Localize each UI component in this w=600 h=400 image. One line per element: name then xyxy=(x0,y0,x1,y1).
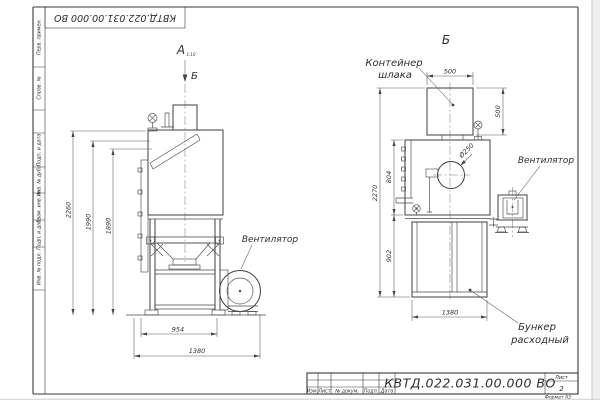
front-door-strip xyxy=(138,160,148,272)
view-front-scale-note: 1:10 xyxy=(187,52,196,57)
side-valve-top-icon xyxy=(474,121,482,140)
front-valve-icon xyxy=(148,114,157,132)
drawing-sheet: Перв. примен. Справ. № Подп. и дата Инв.… xyxy=(0,0,600,400)
front-dim-2260-text: 2260 xyxy=(65,202,73,219)
frame-cell-podp-data-1: Подп. и дата xyxy=(37,134,43,167)
front-dim-954: 954 xyxy=(141,318,217,337)
front-sloped-panel xyxy=(150,134,200,169)
stamp-designation-rotated: КВТД.022.031.00.000 ВО xyxy=(53,12,176,23)
side-dim-500w-text: 500 xyxy=(444,68,456,76)
side-dim-804: 804 xyxy=(385,140,403,215)
front-body xyxy=(148,130,223,215)
side-dim-902: 902 xyxy=(385,215,396,297)
front-dim-1380: 1380 xyxy=(134,314,260,359)
front-dim-1990: 1990 xyxy=(85,141,151,315)
side-fan xyxy=(489,187,529,237)
format-note: Формат А3 xyxy=(545,395,571,400)
side-dim-500h-text: 500 xyxy=(494,105,502,117)
section-arrowhead-icon xyxy=(183,75,188,83)
view-front: А 1:10 Б xyxy=(65,43,299,359)
side-valve-lower-icon xyxy=(413,205,421,215)
front-fan xyxy=(220,270,261,315)
front-outlet-pipe xyxy=(161,113,174,130)
front-dim-1890: 1890 xyxy=(105,149,153,315)
frame-cell-sprav-n: Справ. № xyxy=(37,76,43,99)
view-side-title: Б xyxy=(442,33,450,47)
front-fan-label: Вентилятор xyxy=(242,235,299,245)
side-dim-804-text: 804 xyxy=(385,171,393,183)
front-dim-954-text: 954 xyxy=(172,326,184,334)
title-block-col-podp: Подп. xyxy=(364,388,379,394)
drawing-canvas: Перв. примен. Справ. № Подп. и дата Инв.… xyxy=(0,0,600,400)
front-fan-callout: Вентилятор xyxy=(241,235,298,269)
section-arrow: Б xyxy=(183,60,198,82)
side-body xyxy=(405,140,490,215)
side-fan-label: Вентилятор xyxy=(518,156,575,166)
view-side: Б Контейнер шлака 500 500 xyxy=(365,33,574,346)
side-dim-d250-text: Ø250 xyxy=(457,142,476,161)
side-dim-902-text: 902 xyxy=(385,250,393,262)
paper-edges xyxy=(0,0,600,400)
paper-shadow-right xyxy=(592,0,600,400)
side-container-label-2: шлака xyxy=(378,70,412,81)
title-block-col-doc: № докум. xyxy=(334,388,359,394)
section-arrow-label: Б xyxy=(191,71,198,82)
side-lower-hopper-box xyxy=(412,222,487,297)
side-fan-callout: Вентилятор xyxy=(514,156,574,200)
side-hopper-label-1: Бункер xyxy=(518,322,556,333)
frame-cell-podp-data-2: Подп. и дата xyxy=(37,217,43,250)
title-block-sheet-number: 2 xyxy=(559,385,564,393)
frame-cell-inv-podl: Инв. № подл. xyxy=(37,252,43,285)
front-dim-1990-text: 1990 xyxy=(85,214,93,231)
title-block-sheet-label: Лист xyxy=(554,375,569,381)
front-dim-1380-text: 1380 xyxy=(189,347,206,355)
side-dim-2270-text: 2270 xyxy=(371,185,379,202)
front-dim-1890-text: 1890 xyxy=(105,218,113,235)
side-dim-1380: 1380 xyxy=(412,300,487,321)
title-block-col-izm: Изм. xyxy=(307,388,318,394)
side-round-opening xyxy=(426,162,470,213)
title-block-designation: КВТД.022.031.00.000 ВО xyxy=(384,376,556,391)
front-hopper-funnel xyxy=(157,243,210,269)
side-container-callout: Контейнер шлака xyxy=(365,58,454,106)
side-container-neck xyxy=(442,135,463,140)
frame-cell-perv-primen: Перв. примен. xyxy=(37,19,43,55)
side-hopper-label-2: расходный xyxy=(510,335,569,346)
side-container-label-1: Контейнер xyxy=(365,58,422,69)
drawing-frame: Перв. примен. Справ. № Подп. и дата Инв.… xyxy=(33,7,578,394)
side-body-flange xyxy=(405,215,490,219)
side-dim-1380-text: 1380 xyxy=(442,309,459,317)
title-block-col-list: Лист xyxy=(317,388,330,394)
title-block: Изм. Лист № докум. Подп. Дата КВТД.022.0… xyxy=(307,373,578,400)
view-front-title: А xyxy=(176,43,185,57)
side-dim-d250: Ø250 xyxy=(457,142,476,166)
